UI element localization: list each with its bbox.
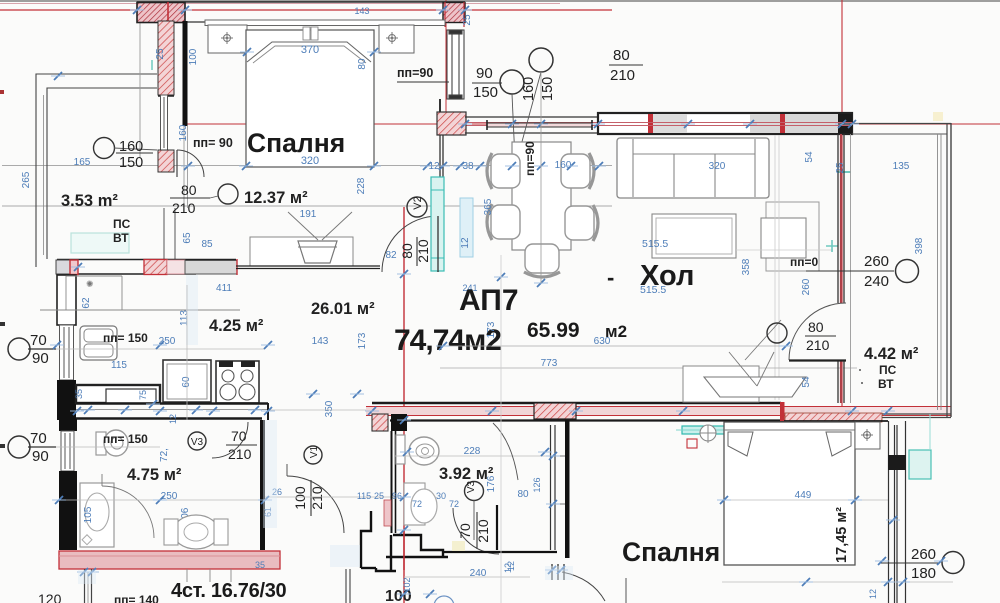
svg-text:210: 210 bbox=[610, 67, 635, 84]
svg-text:26.01 м²: 26.01 м² bbox=[311, 300, 375, 318]
svg-text:Хол: Хол bbox=[640, 260, 694, 292]
svg-text:143: 143 bbox=[312, 336, 329, 347]
svg-text:210: 210 bbox=[309, 486, 325, 510]
svg-text:80: 80 bbox=[399, 243, 415, 259]
svg-text:80: 80 bbox=[808, 319, 824, 335]
svg-text:240: 240 bbox=[470, 568, 487, 579]
svg-text:V3: V3 bbox=[466, 480, 477, 493]
svg-text:85: 85 bbox=[201, 239, 213, 250]
svg-text:398: 398 bbox=[914, 237, 925, 254]
svg-text:176: 176 bbox=[486, 475, 497, 492]
svg-text:72: 72 bbox=[449, 499, 459, 509]
svg-text:165: 165 bbox=[74, 157, 91, 168]
svg-text:-: - bbox=[607, 265, 614, 290]
svg-text:ВТ: ВТ bbox=[878, 377, 894, 391]
svg-text:65: 65 bbox=[182, 232, 193, 244]
svg-text:365: 365 bbox=[483, 198, 494, 215]
svg-text:12.37 м²: 12.37 м² bbox=[244, 189, 308, 207]
svg-text:82: 82 bbox=[385, 250, 397, 261]
svg-text:35: 35 bbox=[255, 560, 265, 570]
svg-text:70: 70 bbox=[30, 430, 47, 447]
svg-text:180: 180 bbox=[911, 565, 936, 582]
svg-text:160: 160 bbox=[555, 160, 572, 171]
svg-text:411: 411 bbox=[216, 283, 232, 294]
svg-text:210: 210 bbox=[415, 239, 431, 263]
svg-text:✺: ✺ bbox=[86, 279, 94, 289]
svg-text:пп=90: пп=90 bbox=[397, 66, 433, 80]
svg-text:30: 30 bbox=[436, 491, 446, 501]
svg-text:370: 370 bbox=[301, 44, 319, 56]
svg-text:ПС: ПС bbox=[113, 217, 131, 231]
svg-text:210: 210 bbox=[172, 200, 196, 216]
svg-text:173: 173 bbox=[357, 332, 368, 349]
svg-text:25: 25 bbox=[462, 14, 473, 26]
svg-text:210: 210 bbox=[806, 337, 830, 353]
svg-text:265: 265 bbox=[21, 171, 32, 188]
svg-text:пп=0: пп=0 bbox=[790, 255, 819, 269]
svg-text:пп= 150: пп= 150 bbox=[103, 331, 148, 345]
svg-text:80: 80 bbox=[181, 182, 197, 198]
svg-text:228: 228 bbox=[356, 177, 367, 194]
svg-text:90: 90 bbox=[476, 65, 493, 82]
svg-text:12: 12 bbox=[868, 589, 878, 599]
svg-text:72: 72 bbox=[412, 499, 422, 509]
svg-text:80: 80 bbox=[613, 47, 630, 64]
svg-text:12: 12 bbox=[503, 563, 513, 573]
svg-text:358: 358 bbox=[741, 258, 752, 275]
svg-text:4ст. 16.76/30: 4ст. 16.76/30 bbox=[171, 580, 287, 602]
svg-text:120: 120 bbox=[38, 591, 62, 603]
svg-text:173: 173 bbox=[486, 321, 497, 338]
svg-text:4.75 м²: 4.75 м² bbox=[127, 466, 182, 484]
svg-text:пп= 90: пп= 90 bbox=[193, 136, 233, 150]
svg-text:Спалня: Спалня bbox=[247, 128, 345, 158]
svg-text:72,: 72, bbox=[159, 448, 170, 462]
svg-text:100: 100 bbox=[292, 486, 308, 510]
svg-text:115: 115 bbox=[111, 360, 127, 371]
svg-text:ПС: ПС bbox=[879, 363, 897, 377]
svg-text:12: 12 bbox=[460, 237, 471, 249]
svg-text:54: 54 bbox=[801, 376, 812, 388]
svg-text:150: 150 bbox=[540, 77, 556, 101]
svg-text:126: 126 bbox=[532, 477, 542, 492]
svg-text:100: 100 bbox=[188, 48, 199, 65]
svg-text:90: 90 bbox=[32, 448, 49, 465]
svg-text:80: 80 bbox=[357, 58, 368, 70]
svg-text:320: 320 bbox=[709, 161, 726, 172]
svg-text:150: 150 bbox=[473, 84, 498, 101]
svg-text:449: 449 bbox=[795, 490, 812, 501]
svg-text:260: 260 bbox=[911, 546, 936, 563]
svg-text:210: 210 bbox=[228, 446, 252, 462]
svg-text:70: 70 bbox=[231, 428, 247, 444]
svg-text:62: 62 bbox=[81, 297, 92, 309]
svg-text:773: 773 bbox=[541, 358, 558, 369]
svg-text:25: 25 bbox=[374, 491, 384, 501]
svg-text:75: 75 bbox=[138, 390, 148, 400]
svg-text:228: 228 bbox=[464, 446, 481, 457]
svg-text:V2: V2 bbox=[412, 196, 424, 209]
svg-text:240: 240 bbox=[864, 273, 889, 290]
svg-text:160: 160 bbox=[119, 139, 143, 155]
svg-text:143: 143 bbox=[354, 6, 369, 16]
svg-text:ВТ: ВТ bbox=[113, 231, 129, 245]
svg-text:пп=90: пп=90 bbox=[523, 141, 537, 176]
svg-text:160: 160 bbox=[178, 124, 189, 141]
svg-text:4.25 м²: 4.25 м² bbox=[209, 317, 264, 335]
svg-text:3.53 m²: 3.53 m² bbox=[61, 192, 118, 210]
svg-text:4.42 м²: 4.42 м² bbox=[864, 345, 919, 363]
svg-text:115: 115 bbox=[357, 491, 371, 501]
svg-text:60: 60 bbox=[181, 376, 192, 388]
svg-text:V3: V3 bbox=[191, 437, 204, 448]
svg-text:90: 90 bbox=[32, 350, 49, 367]
svg-text:25: 25 bbox=[155, 48, 166, 60]
svg-text:70: 70 bbox=[30, 332, 47, 349]
svg-text:150: 150 bbox=[119, 155, 143, 171]
svg-text:210: 210 bbox=[475, 519, 491, 543]
svg-text:Спалня: Спалня bbox=[622, 537, 720, 567]
svg-text:пп= 140: пп= 140 bbox=[114, 593, 159, 603]
svg-text:54: 54 bbox=[804, 151, 815, 163]
svg-text:65.99: 65.99 bbox=[527, 319, 580, 342]
svg-text:260: 260 bbox=[864, 253, 889, 270]
svg-text:17,45 м²: 17,45 м² bbox=[834, 507, 850, 563]
svg-text:35: 35 bbox=[74, 389, 84, 399]
svg-text:191: 191 bbox=[300, 209, 317, 220]
svg-text:25: 25 bbox=[835, 162, 846, 174]
svg-text:160: 160 bbox=[521, 77, 537, 101]
svg-text:350: 350 bbox=[324, 400, 335, 417]
svg-text:135: 135 bbox=[893, 161, 910, 172]
svg-text:80: 80 bbox=[517, 489, 529, 500]
svg-text:V1: V1 bbox=[309, 445, 320, 458]
svg-text:пп= 150: пп= 150 bbox=[103, 432, 148, 446]
svg-text:515.5: 515.5 bbox=[642, 238, 668, 250]
svg-text:12: 12 bbox=[168, 414, 178, 424]
svg-text:105: 105 bbox=[83, 506, 94, 523]
svg-text:АП7: АП7 bbox=[459, 284, 519, 317]
svg-text:630: 630 bbox=[594, 336, 611, 347]
svg-text:260: 260 bbox=[801, 278, 812, 295]
